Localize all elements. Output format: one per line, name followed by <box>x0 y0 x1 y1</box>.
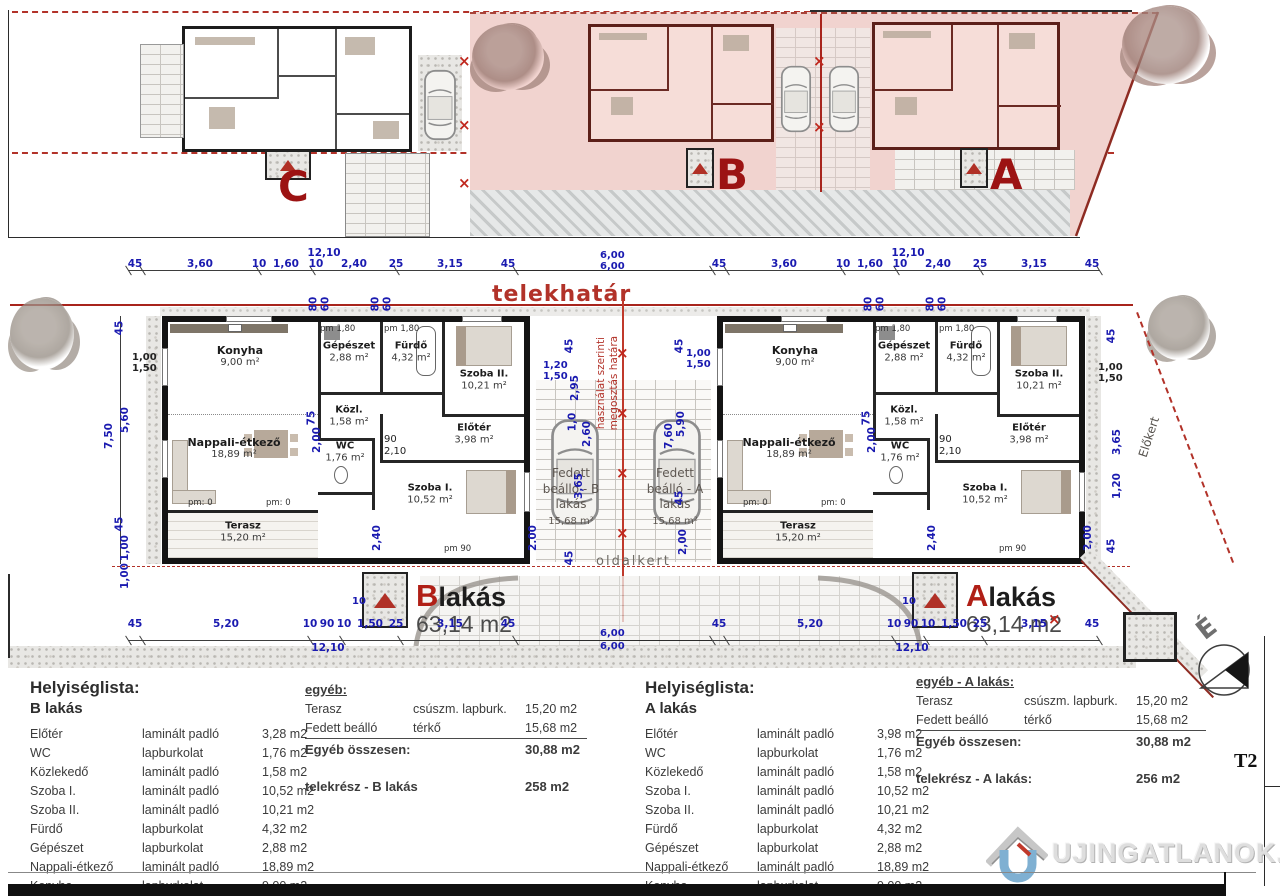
room-label-wc: WC1,76 m² <box>325 441 364 464</box>
dim: 45 <box>673 339 685 354</box>
dimension-mid-bottom: 6,00 <box>600 628 625 639</box>
dim-pair: 1,201,50 <box>543 360 568 382</box>
logo-text: UJINGATLANOK.HU <box>1052 838 1280 869</box>
dim: 45 <box>113 321 125 336</box>
site-driveway-hatched <box>470 190 1070 236</box>
division-x-mark: × <box>813 118 826 136</box>
site-building-c-plan <box>182 26 412 152</box>
room-label-nappali: Nappali-étkező18,89 m² <box>187 436 280 460</box>
site-terrace-c <box>140 44 184 138</box>
parapet-note: pm: 0 <box>821 498 846 508</box>
dim: 1,0 <box>566 413 578 432</box>
table-total-row: Egyéb összesen:30,88 m2 <box>305 739 587 757</box>
room-label-konyha: Konyha9,00 m² <box>772 344 818 368</box>
bed-pillow <box>1061 470 1071 514</box>
table-row: Szoba II.laminált padló10,21 m2 <box>30 801 318 820</box>
bed-pillow <box>506 470 516 514</box>
room-label-furdo: Fürdő4,32 m² <box>946 341 985 364</box>
entrance-arrow-icon <box>692 163 708 174</box>
other-list-b: egyéb: Teraszcsúszm. lapburk.15,20 m2 Fe… <box>305 682 587 794</box>
dim: 10 <box>352 596 366 607</box>
tree-icon <box>472 24 544 90</box>
site-path-brick <box>345 153 430 237</box>
parcel-row: telekrész - A lakás:256 m2 <box>916 771 1206 786</box>
table-row: Közlekedőlaminált padló1,58 m2 <box>30 763 318 782</box>
site-entrance-marker-b <box>686 148 714 188</box>
sheet-number: T2 <box>1234 750 1257 773</box>
chair <box>290 434 298 442</box>
other-list-a-title: egyéb - A lakás: <box>916 674 1206 689</box>
entrance-arrow-icon <box>374 593 396 608</box>
dim: 5,90 <box>675 411 687 437</box>
boundary-x-mark: × <box>458 116 471 134</box>
bed-pillow <box>1011 326 1021 366</box>
table-row: Teraszcsúszm. lapburk.15,20 m2 <box>305 700 587 719</box>
kitchen-sink <box>783 324 797 332</box>
other-list-b-title: egyéb: <box>305 682 587 697</box>
room-label-eloter: Előtér3,98 m² <box>454 423 493 446</box>
boundary-x-mark: × <box>458 52 471 70</box>
room-label-szoba2: Szoba II.10,21 m² <box>460 369 509 392</box>
room-label-eloter: Előtér3,98 m² <box>1009 423 1048 446</box>
logo-house-icon <box>986 824 1048 886</box>
room-label-gepeszet: Gépészet2,88 m² <box>323 341 375 364</box>
parapet-note: pm 1,80 <box>384 324 419 334</box>
plumbing-dim: 60 <box>874 297 886 312</box>
room-label-gepeszet: Gépészet2,88 m² <box>878 341 930 364</box>
table-row: Gépészetlapburkolat2,88 m2 <box>30 839 318 858</box>
room-list-b-title: Helyiséglista: <box>30 678 318 698</box>
dim: 3,65 <box>573 473 585 499</box>
room-list-b-subtitle: B lakás <box>30 700 318 717</box>
car-icon <box>827 56 861 142</box>
unit-b-floor-plan: Konyha9,00 m² Gépészet2,88 m² Fürdő4,32 … <box>162 316 530 564</box>
table-row: WClapburkolat1,76 m2 <box>645 744 933 763</box>
room-label-szoba2: Szoba II.10,21 m² <box>1015 369 1064 392</box>
room-list-b: Helyiséglista: B lakás Előtérlaminált pa… <box>30 678 318 896</box>
dimension-mid-bottom2: 6,00 <box>600 641 625 652</box>
entrance-arrow-icon <box>924 593 946 608</box>
entrance-arrow-icon <box>966 163 982 174</box>
dim: 2,95 <box>569 375 581 401</box>
dim: 7,60 <box>663 423 675 449</box>
chair <box>290 448 298 456</box>
room-label-szoba1: Szoba I.10,52 m² <box>407 483 453 506</box>
table-row: Teraszcsúszm. lapburk.15,20 m2 <box>916 692 1206 711</box>
table-row: Szoba II.laminált padló10,21 m2 <box>645 801 933 820</box>
parapet-note: pm 1,80 <box>939 324 974 334</box>
car-icon <box>779 56 813 142</box>
parapet-note: pm: 0 <box>188 498 213 508</box>
division-note: használat szerintimegosztás határa <box>595 323 621 443</box>
dim: 3,65 <box>1111 429 1123 455</box>
plumbing-dim: 80 <box>369 297 381 312</box>
neighbor-structure <box>1123 612 1177 662</box>
room-label-nappali: Nappali-étkező18,89 m² <box>742 436 835 460</box>
room-list-a-title: Helyiséglista: <box>645 678 933 698</box>
boundary-x-mark: × <box>458 174 471 192</box>
table-total-row: Egyéb összesen:30,88 m2 <box>916 731 1206 749</box>
plumbing-dim: 80 <box>307 297 319 312</box>
parapet-note: pm: 0 <box>266 498 291 508</box>
car-icon <box>422 62 458 148</box>
parapet-note: pm 90 <box>444 544 471 554</box>
table-row: Fedett beállótérkő15,68 m2 <box>916 711 1206 731</box>
table-row: Nappali-étkezőlaminált padló18,89 m2 <box>645 858 933 877</box>
sofa <box>727 440 743 492</box>
unit-b-tag: Blakás 63,14 m2 <box>416 578 512 638</box>
dimension-string-top-right: 45 3,60 10 1,60 10 2,40 25 3,15 45 12,10 <box>712 262 1100 278</box>
room-list-a: Helyiséglista: A lakás Előtérlaminált pa… <box>645 678 933 896</box>
street-edge-band <box>8 646 1136 668</box>
tree-icon <box>1148 296 1210 360</box>
parapet-note: pm 1,80 <box>320 324 355 334</box>
division-x-mark: × <box>616 464 629 482</box>
dim: 1,20 <box>1111 473 1123 499</box>
frame-line-left <box>8 10 9 237</box>
room-label-furdo: Fürdő4,32 m² <box>391 341 430 364</box>
window-dim-pair: 1,001,50 <box>1098 362 1123 384</box>
table-row: Gépészetlapburkolat2,88 m2 <box>645 839 933 858</box>
site-label-b: B <box>716 150 748 199</box>
plumbing-dim: 60 <box>936 297 948 312</box>
plumbing-dim: 80 <box>924 297 936 312</box>
parcel-row: telekrész - B lakás258 m2 <box>305 779 587 794</box>
table-row: Előtérlaminált padló3,28 m2 <box>30 725 318 744</box>
toilet <box>334 466 348 484</box>
sofa <box>172 440 188 492</box>
dim: 10 <box>902 596 916 607</box>
parapet-note: pm 1,80 <box>875 324 910 334</box>
dim: 2,60 <box>581 421 593 447</box>
table-row: Fürdőlapburkolat4,32 m2 <box>30 820 318 839</box>
elokert-label: Előkert <box>1136 415 1162 459</box>
dim: 2,00 <box>677 529 689 555</box>
bed-pillow <box>456 326 466 366</box>
dim: 45 <box>1105 329 1117 344</box>
chair <box>845 448 853 456</box>
dimension-string-bottom-left: 45 5,20 10 90 10 1,50 25 3,15 45 12,10 <box>128 632 516 648</box>
table-row: Közlekedőlaminált padló1,58 m2 <box>645 763 933 782</box>
plumbing-dim: 60 <box>319 297 331 312</box>
tree-icon <box>10 298 74 370</box>
dimension-string-bottom-right: 45 5,20 10 90 10 1,50 25 3,15 45 12,10 <box>712 632 1100 648</box>
toilet <box>889 466 903 484</box>
room-label-konyha: Konyha9,00 m² <box>217 344 263 368</box>
room-label-szoba1: Szoba I.10,52 m² <box>962 483 1008 506</box>
site-building-b-plan <box>588 24 774 142</box>
window-dim-pair: 1,001,50 <box>132 352 157 374</box>
plumbing-dim: 60 <box>381 297 393 312</box>
dim: 1,00 <box>119 535 131 561</box>
titleblock-line-h <box>1264 786 1280 787</box>
kitchen-sink <box>228 324 242 332</box>
footer-bar-end <box>1224 872 1226 896</box>
dimension-string-top-left: 45 3,60 10 1,60 10 2,40 25 3,15 45 12,10 <box>128 262 516 278</box>
table-row: WClapburkolat1,76 m2 <box>30 744 318 763</box>
dim-pair: 1,001,50 <box>686 348 711 370</box>
dimension-mid-top2: 6,00 <box>600 261 625 272</box>
table-row: Szoba I.laminált padló10,52 m2 <box>645 782 933 801</box>
telekhatar-line <box>10 304 1133 306</box>
table-row: Nappali-étkezőlaminált padló18,89 m2 <box>30 858 318 877</box>
table-row: Fedett beállótérkő15,68 m2 <box>305 719 587 739</box>
room-label-kozl: Közl.1,58 m² <box>329 405 368 428</box>
site-building-a-plan <box>872 22 1060 150</box>
boundary-x-mark: × <box>1048 610 1061 628</box>
footer-line <box>8 872 1256 873</box>
oldalkert-label: oldalkert <box>596 554 671 569</box>
chair <box>845 434 853 442</box>
division-x-mark: × <box>813 52 826 70</box>
dim: 45 <box>563 339 575 354</box>
room-label-terasz: Terasz15,20 m² <box>220 521 266 544</box>
parapet-note: pm: 0 <box>743 498 768 508</box>
boundary-fill-strip <box>160 307 1090 316</box>
tree-icon <box>1122 6 1210 84</box>
site-entrance-marker-a <box>960 148 988 188</box>
site-division-line <box>820 14 822 192</box>
site-label-a: A <box>990 150 1023 199</box>
footer-bar <box>8 884 1224 896</box>
room-label-terasz: Terasz15,20 m² <box>775 521 821 544</box>
plumbing-dim: 80 <box>862 297 874 312</box>
dim: 45 <box>1105 539 1117 554</box>
table-row: Fürdőlapburkolat4,32 m2 <box>645 820 933 839</box>
table-row: Előtérlaminált padló3,98 m2 <box>645 725 933 744</box>
dim: 45 <box>673 491 685 506</box>
unit-a-floor-plan: Konyha9,00 m² Gépészet2,88 m² Fürdő4,32 … <box>717 316 1085 564</box>
pavement-edge-line <box>8 237 1080 238</box>
frame-stub-left <box>8 574 10 658</box>
division-x-mark: × <box>616 524 629 542</box>
dim: 45 <box>563 551 575 566</box>
other-list-a: egyéb - A lakás: Teraszcsúszm. lapburk.1… <box>916 674 1206 786</box>
dimension-mid-top: 6,00 <box>600 250 625 261</box>
room-label-kozl: Közl.1,58 m² <box>884 405 923 428</box>
room-label-wc: WC1,76 m² <box>880 441 919 464</box>
table-row: Szoba I.laminált padló10,52 m2 <box>30 782 318 801</box>
site-label-c: C <box>278 162 309 211</box>
dim: 45 <box>113 517 125 532</box>
room-list-a-subtitle: A lakás <box>645 700 933 717</box>
dim-total: 7,50 <box>103 423 115 449</box>
carport-b-label: Fedettbeálló - B lakás15,68 m² <box>540 466 602 528</box>
dim: 5,60 <box>119 407 131 433</box>
parapet-note: pm 90 <box>999 544 1026 554</box>
architectural-drawing-sheet: C × × × × × B A 45 3,60 10 1,60 10 2,40 … <box>0 0 1280 896</box>
